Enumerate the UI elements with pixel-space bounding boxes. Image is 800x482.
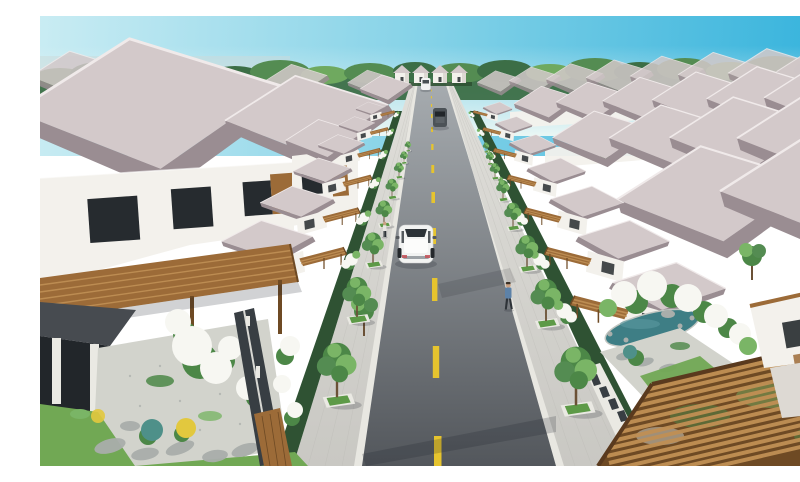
gray-car-mid bbox=[431, 108, 449, 131]
villa-window bbox=[87, 196, 140, 243]
wheel bbox=[398, 248, 402, 258]
rock-feature bbox=[661, 310, 675, 318]
white-car-far bbox=[420, 78, 431, 92]
side-mirror bbox=[433, 236, 437, 239]
porch-column bbox=[52, 338, 61, 404]
moss-mound bbox=[146, 375, 174, 387]
side-mirror bbox=[396, 236, 400, 239]
moss-mound bbox=[198, 411, 222, 421]
taillight bbox=[425, 255, 430, 258]
garden-tree bbox=[739, 243, 766, 280]
villa-window bbox=[171, 187, 214, 230]
fence-post bbox=[256, 366, 260, 378]
teal-flower-bush bbox=[623, 345, 637, 359]
white-suv bbox=[395, 225, 437, 269]
render-canvas: Aerial three-quarter view of a master-pl… bbox=[40, 16, 800, 466]
villa-community-render: Aerial three-quarter view of a master-pl… bbox=[40, 16, 800, 466]
wheel bbox=[431, 248, 435, 258]
taillight bbox=[402, 255, 407, 258]
fence-post bbox=[246, 316, 250, 326]
rear-window bbox=[405, 229, 427, 237]
